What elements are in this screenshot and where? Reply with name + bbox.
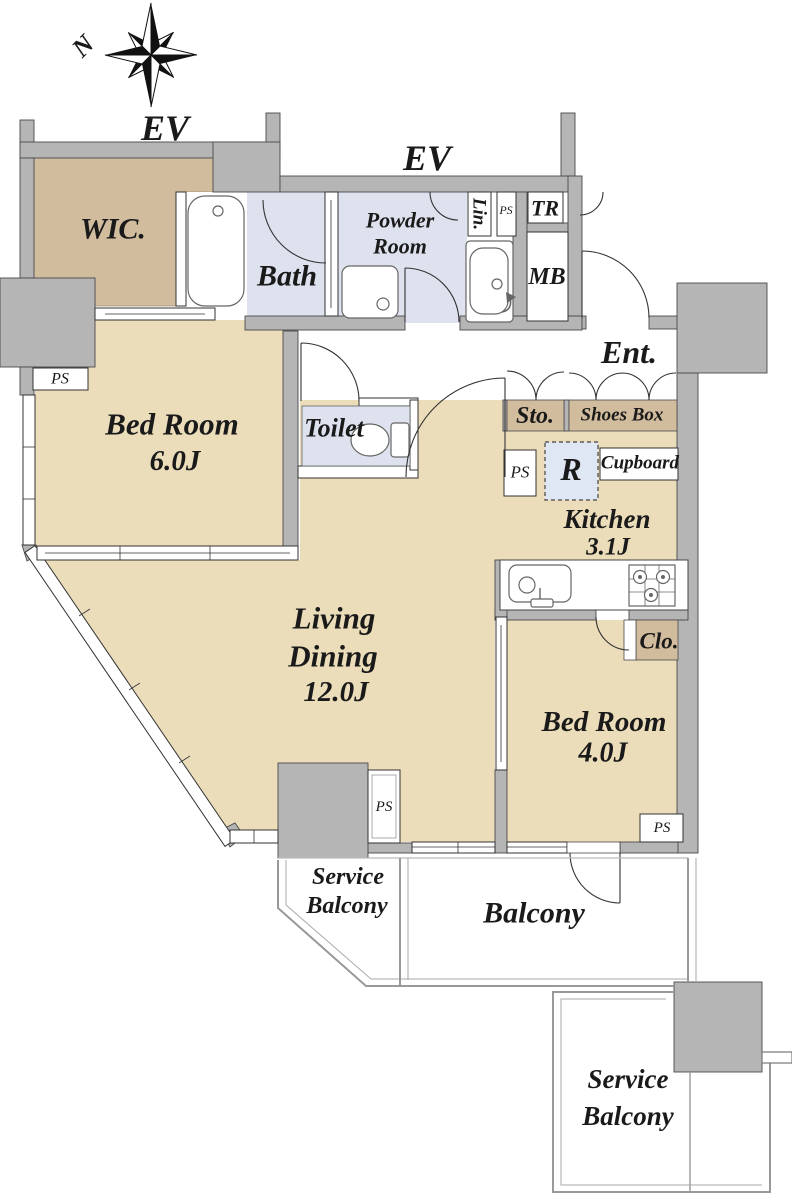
compass-rose: [105, 3, 197, 107]
closet-door-panel: [624, 620, 636, 660]
toilet-top-band: [359, 398, 418, 406]
ps-left-label: PS: [50, 371, 69, 388]
service-balcony-right-label-1: Service: [588, 1064, 669, 1094]
wic-label: WIC.: [80, 213, 146, 246]
compass-north-label: N: [65, 28, 100, 63]
floor-plan-svg: N EV EV WIC. Bath Powder Room Lin. PS TR…: [0, 0, 792, 1200]
shoes-box-label: Shoes Box: [581, 405, 664, 426]
living-dining-floor: [37, 560, 495, 842]
bedroom6-size-label: 6.0J: [150, 445, 202, 477]
kitchen-size-label: 3.1J: [585, 534, 631, 561]
entrance-door-arc: [582, 251, 649, 318]
wall-left-below-pillar: [20, 367, 34, 395]
shoes-box-door-arcs: [569, 373, 676, 400]
ps-linen-label: PS: [498, 203, 512, 217]
toilet-door-arc: [301, 343, 359, 401]
toilet-label: Toilet: [304, 414, 364, 443]
wall-top-block: [213, 142, 280, 192]
window-bedroom6-left: [23, 395, 35, 545]
doorway-balcony: [567, 842, 620, 853]
wall-tr-mb-divider: [527, 223, 568, 232]
pillar-top-right: [677, 283, 767, 373]
toilet-bottom-band: [298, 466, 418, 478]
pillar-bottom-mid: [278, 763, 368, 858]
washbasin-drain: [492, 279, 502, 289]
refrigerator-label: R: [559, 451, 581, 487]
shower-tray: [342, 266, 398, 318]
toilet-tank: [391, 423, 409, 457]
balcony-right-tab: [762, 1052, 792, 1063]
wall-ent-top-right: [649, 316, 678, 329]
floor-plan-page: N EV EV WIC. Bath Powder Room Lin. PS TR…: [0, 0, 792, 1200]
trunk-room-label: TR: [531, 196, 559, 221]
closet-label: Clo.: [640, 629, 679, 654]
toilet-right-strip: [410, 400, 418, 470]
wall-strip-wic-bath: [176, 192, 186, 306]
wall-ev1-right-stub: [266, 113, 280, 143]
wall-bedroom6-right: [283, 331, 298, 546]
wall-kitchen-bottom-right: [629, 610, 688, 620]
ps-middle-label: PS: [375, 799, 393, 815]
bath-label: Bath: [256, 260, 317, 293]
dining-label: Dining: [287, 639, 378, 674]
ev1-label: EV: [140, 108, 192, 148]
meter-box-label: MB: [527, 264, 565, 290]
powder-room-label-1: Powder: [365, 208, 435, 233]
living-size-label: 12.0J: [303, 676, 370, 708]
ps-kitchen-label: PS: [510, 463, 530, 482]
wall-storage-divider: [564, 400, 569, 431]
compass-cardinal-points: [105, 3, 197, 107]
cupboard-label: Cupboard: [601, 453, 680, 474]
service-balcony-right-label-2: Balcony: [581, 1101, 675, 1131]
storage-double-door-arcs: [507, 371, 564, 400]
window-ld-balcony: [412, 842, 495, 853]
wall-partition-bottom: [495, 770, 507, 853]
powder-room-label-2: Room: [372, 234, 427, 259]
sliding-door-bath: [325, 192, 338, 316]
linen-label: Lin.: [469, 197, 490, 230]
wall-ev2-bottom: [280, 176, 575, 192]
balcony-label: Balcony: [482, 897, 585, 930]
wall-kitchen-bottom-left: [495, 610, 596, 620]
bedroom4-label: Bed Room: [541, 706, 667, 738]
pillar-bottom-right: [674, 982, 762, 1072]
wall-bottom-bedroom4: [620, 842, 678, 853]
wall-ent-top-left: [582, 316, 586, 329]
trunk-door-arc: [580, 192, 603, 215]
entrance-label: Ent.: [600, 334, 657, 370]
pillar-left: [0, 278, 95, 367]
storage-label: Sto.: [516, 403, 554, 429]
sink-faucet-base: [531, 599, 553, 607]
bath-floor: [247, 192, 325, 316]
kitchen-label: Kitchen: [562, 504, 650, 534]
bedroom4-size-label: 4.0J: [578, 738, 629, 769]
living-label: Living: [292, 601, 376, 636]
service-balcony-left-label-1: Service: [312, 864, 384, 890]
wall-ev2-right-stub: [561, 113, 575, 176]
shower-drain: [377, 298, 389, 310]
window-bedroom4-balcony: [507, 842, 567, 853]
sink-drain: [519, 577, 535, 593]
wall-ent-left: [568, 176, 582, 316]
bedroom6-label: Bed Room: [104, 407, 238, 442]
sliding-partition-bedroom4: [496, 617, 507, 770]
service-balcony-left-label-2: Balcony: [305, 893, 388, 919]
bathtub-drain: [213, 206, 223, 216]
ev2-label: EV: [402, 138, 454, 178]
wall-left-outer: [20, 158, 34, 278]
ps-bedroom4-label: PS: [653, 820, 671, 836]
washbasin-bowl: [470, 248, 508, 314]
balcony-door-arc: [570, 853, 620, 903]
